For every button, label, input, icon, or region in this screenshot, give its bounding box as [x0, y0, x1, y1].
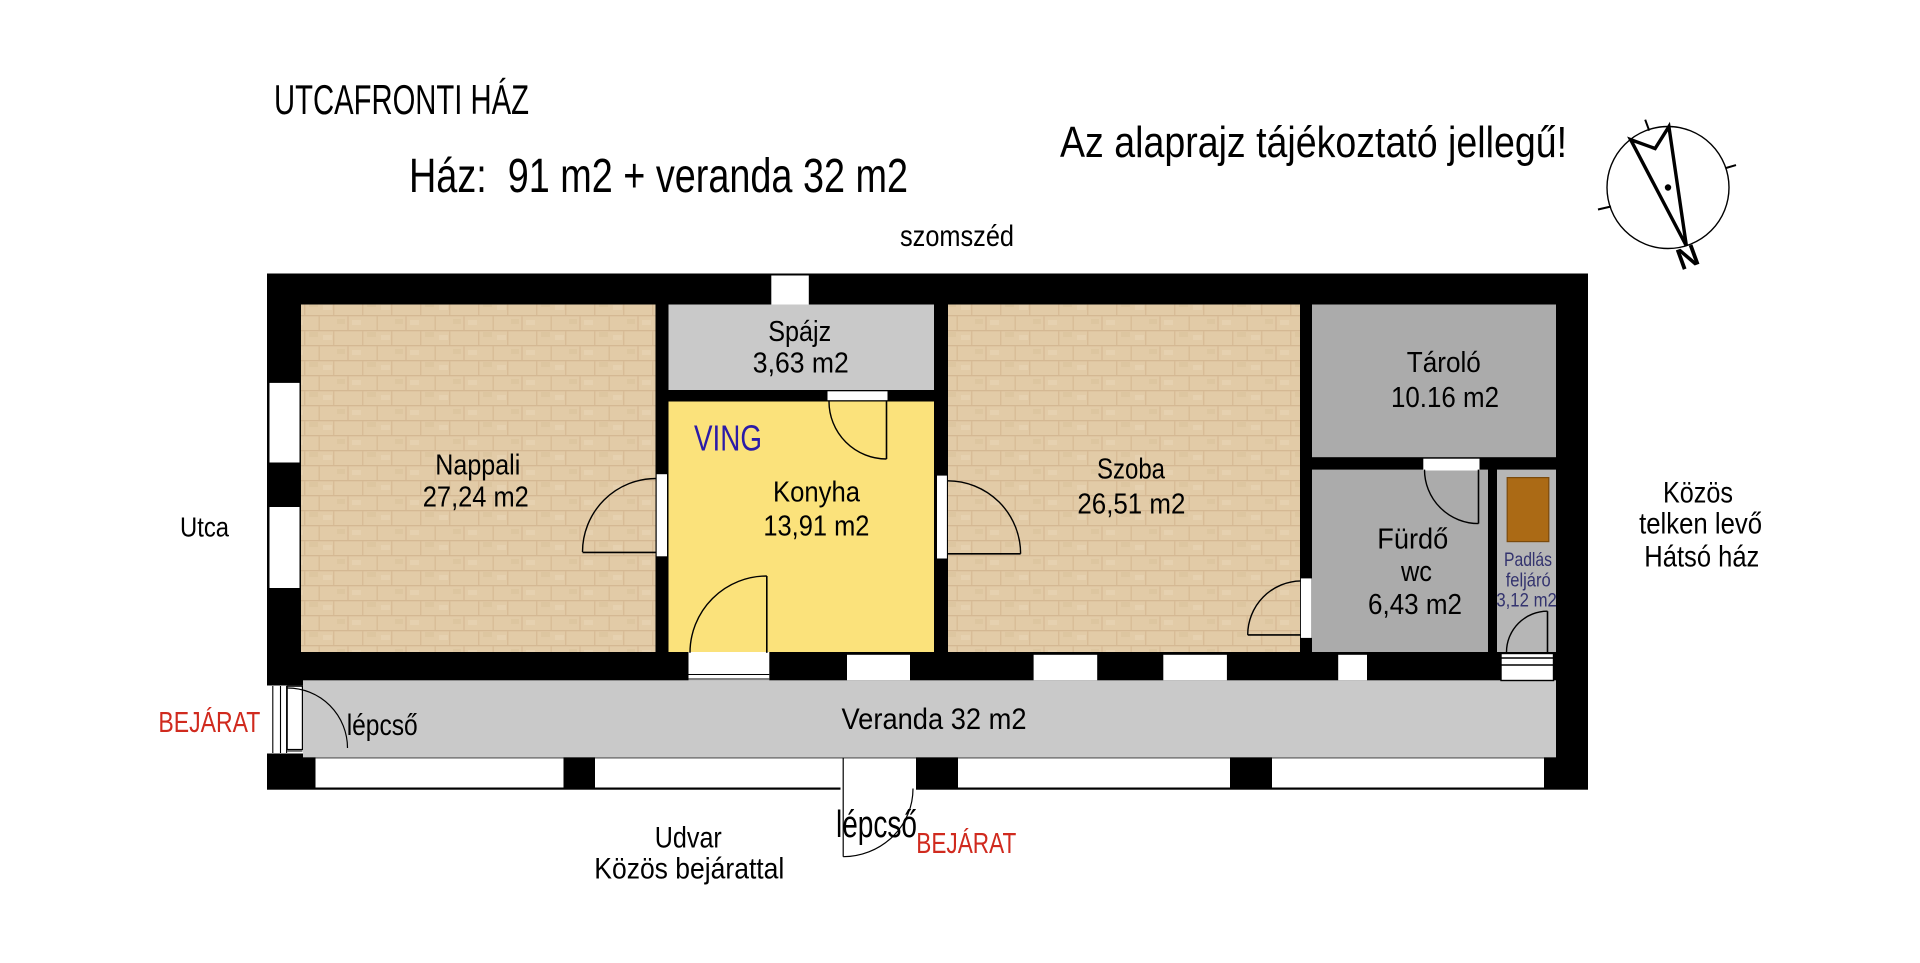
- svg-text:lépcső: lépcső: [347, 709, 418, 742]
- svg-text:Fürdő: Fürdő: [1377, 524, 1448, 556]
- svg-text:Ház: 91 m2 + veranda 32 m2: Ház: 91 m2 + veranda 32 m2: [409, 150, 908, 203]
- svg-text:szomszéd: szomszéd: [900, 220, 1014, 253]
- svg-text:Közös bejárattal: Közös bejárattal: [594, 853, 784, 886]
- svg-text:UTCAFRONTI HÁZ: UTCAFRONTI HÁZ: [274, 76, 529, 123]
- svg-text:telken levő: telken levő: [1639, 508, 1762, 541]
- svg-text:Udvar: Udvar: [655, 822, 722, 855]
- svg-text:BEJÁRAT: BEJÁRAT: [158, 706, 260, 739]
- svg-text:feljáró: feljáró: [1506, 570, 1551, 592]
- svg-text:26,51 m2: 26,51 m2: [1077, 489, 1185, 521]
- svg-text:wc: wc: [1400, 556, 1432, 588]
- svg-text:Utca: Utca: [180, 512, 229, 543]
- svg-text:Veranda 32 m2: Veranda 32 m2: [842, 703, 1027, 736]
- svg-text:10.16 m2: 10.16 m2: [1391, 382, 1499, 414]
- svg-text:Padlás: Padlás: [1504, 549, 1552, 571]
- svg-text:3,63 m2: 3,63 m2: [753, 347, 849, 379]
- svg-text:Szoba: Szoba: [1097, 454, 1166, 486]
- svg-text:Nappali: Nappali: [435, 449, 520, 481]
- svg-text:VING: VING: [694, 418, 762, 459]
- svg-text:Hátsó ház: Hátsó ház: [1644, 540, 1759, 573]
- svg-text:BEJÁRAT: BEJÁRAT: [916, 827, 1016, 860]
- svg-text:Spájz: Spájz: [768, 316, 831, 348]
- svg-text:Az alaprajz tájékoztató jelleg: Az alaprajz tájékoztató jellegű!: [1060, 118, 1567, 167]
- svg-text:3,12 m2: 3,12 m2: [1496, 590, 1557, 612]
- svg-text:Tároló: Tároló: [1407, 347, 1481, 379]
- svg-text:Közös: Közös: [1663, 477, 1733, 510]
- svg-text:lépcső: lépcső: [836, 804, 917, 846]
- svg-text:13,91 m2: 13,91 m2: [763, 510, 869, 542]
- svg-text:6,43 m2: 6,43 m2: [1368, 589, 1462, 621]
- svg-text:27,24 m2: 27,24 m2: [423, 482, 529, 514]
- svg-text:Konyha: Konyha: [773, 477, 861, 509]
